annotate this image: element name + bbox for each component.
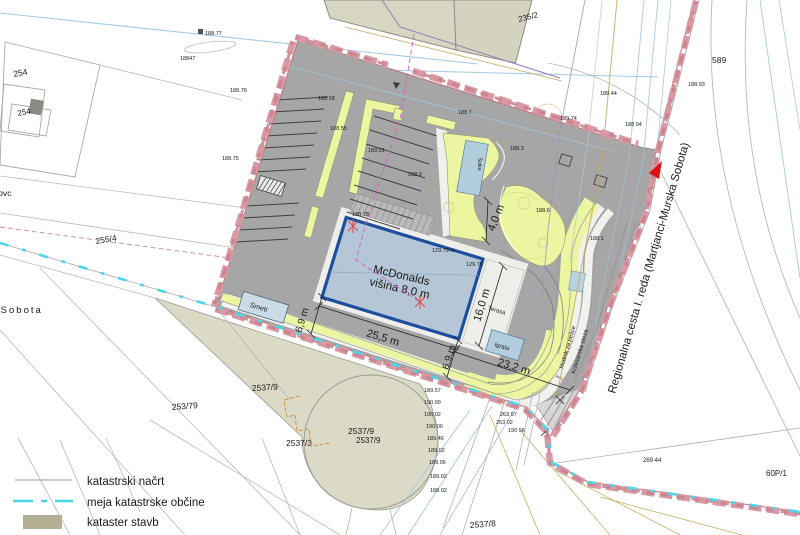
svg-text:129.79 m: 129.79 m xyxy=(432,248,455,254)
svg-text:189.46: 189.46 xyxy=(427,436,444,442)
svg-text:189.02: 189.02 xyxy=(430,474,447,480)
svg-text:188.75: 188.75 xyxy=(222,156,239,162)
svg-text:190.02: 190.02 xyxy=(424,412,441,418)
svg-text:188.58: 188.58 xyxy=(318,96,335,102)
svg-text:190 56: 190 56 xyxy=(508,428,525,434)
svg-text:589: 589 xyxy=(712,55,726,65)
svg-text:129.75: 129.75 xyxy=(466,262,483,268)
svg-text:188.1: 188.1 xyxy=(590,236,604,242)
svg-text:čovc: čovc xyxy=(0,188,12,198)
svg-text:60P/1: 60P/1 xyxy=(766,469,787,478)
svg-text:katastrski načrt: katastrski načrt xyxy=(87,476,165,488)
svg-text:189.01: 189.01 xyxy=(368,148,385,154)
svg-text:2537/3: 2537/3 xyxy=(286,438,312,448)
svg-text:188.9: 188.9 xyxy=(408,172,422,178)
svg-text:263 02: 263 02 xyxy=(496,420,513,426)
svg-text:188.93: 188.93 xyxy=(688,82,705,88)
svg-text:meja katastrske občine: meja katastrske občine xyxy=(87,497,205,509)
svg-text:188.7: 188.7 xyxy=(458,110,472,116)
svg-text:269 44: 269 44 xyxy=(643,458,662,464)
svg-text:188.77: 188.77 xyxy=(205,31,222,37)
svg-text:188.55: 188.55 xyxy=(330,126,347,132)
svg-text:18847: 18847 xyxy=(180,56,195,62)
svg-text:189.02: 189.02 xyxy=(428,448,445,454)
svg-text:188.44: 188.44 xyxy=(600,91,617,97)
svg-text:189.06: 189.06 xyxy=(429,460,446,466)
svg-text:188.6: 188.6 xyxy=(536,208,550,214)
svg-text:2537/9: 2537/9 xyxy=(348,426,374,436)
svg-text:ka Sobota: ka Sobota xyxy=(0,305,43,316)
svg-text:2537/8: 2537/8 xyxy=(469,518,496,530)
svg-text:188.78: 188.78 xyxy=(352,212,369,218)
svg-text:263 97: 263 97 xyxy=(500,412,517,418)
svg-text:Šotka: Šotka xyxy=(476,158,483,171)
svg-text:188.3: 188.3 xyxy=(510,146,524,152)
svg-text:188.02: 188.02 xyxy=(430,488,447,494)
svg-text:189.57: 189.57 xyxy=(424,388,441,394)
svg-text:kataster stavb: kataster stavb xyxy=(87,517,159,529)
svg-text:2537/9: 2537/9 xyxy=(356,436,381,445)
svg-text:189.74: 189.74 xyxy=(560,116,577,122)
svg-text:190.00: 190.00 xyxy=(426,424,443,430)
svg-text:2537/9: 2537/9 xyxy=(252,382,279,393)
svg-text:188.76: 188.76 xyxy=(230,88,247,94)
svg-text:253/79: 253/79 xyxy=(171,400,198,412)
svg-text:188 04: 188 04 xyxy=(625,122,642,128)
svg-text:190.99: 190.99 xyxy=(424,400,441,406)
